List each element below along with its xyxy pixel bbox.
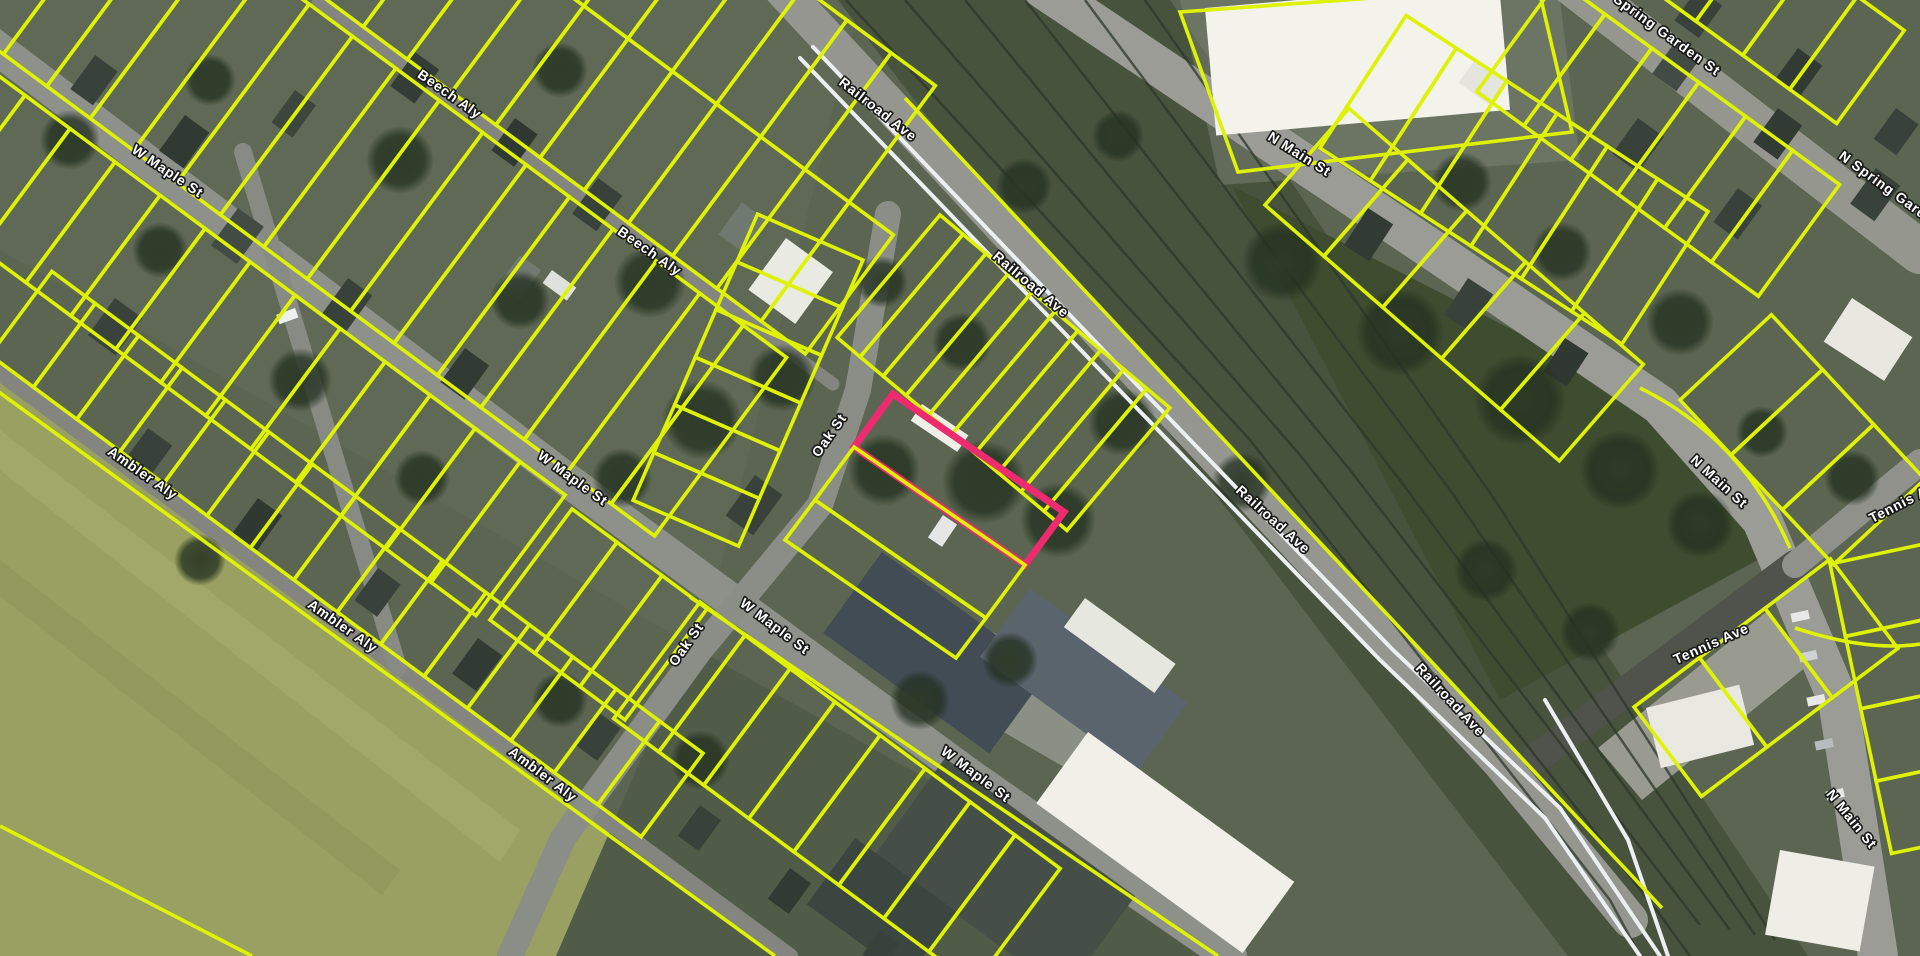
- map-viewport[interactable]: W Maple StW Maple StW Maple StW Maple St…: [0, 0, 1920, 956]
- aerial-parcel-map: W Maple StW Maple StW Maple StW Maple St…: [0, 0, 1920, 956]
- tree-canopy: [890, 670, 950, 730]
- tree-canopy: [1560, 602, 1620, 662]
- tree-canopy: [1666, 490, 1734, 558]
- building-roof: [1765, 850, 1874, 951]
- tree-canopy: [982, 632, 1038, 688]
- tree-canopy: [132, 222, 188, 278]
- tree-canopy: [1454, 538, 1518, 602]
- tree-canopy: [532, 42, 588, 98]
- tree-canopy: [1736, 406, 1788, 458]
- tree-canopy: [184, 54, 236, 106]
- tree-canopy: [932, 312, 992, 372]
- tree-canopy: [1646, 288, 1714, 356]
- tree-canopy: [490, 270, 550, 330]
- tree-canopy: [1242, 222, 1322, 302]
- tree-canopy: [1356, 288, 1444, 376]
- tree-canopy: [1824, 450, 1880, 506]
- tree-canopy: [174, 534, 226, 586]
- tree-canopy: [1092, 110, 1144, 162]
- tree-canopy: [1580, 430, 1660, 510]
